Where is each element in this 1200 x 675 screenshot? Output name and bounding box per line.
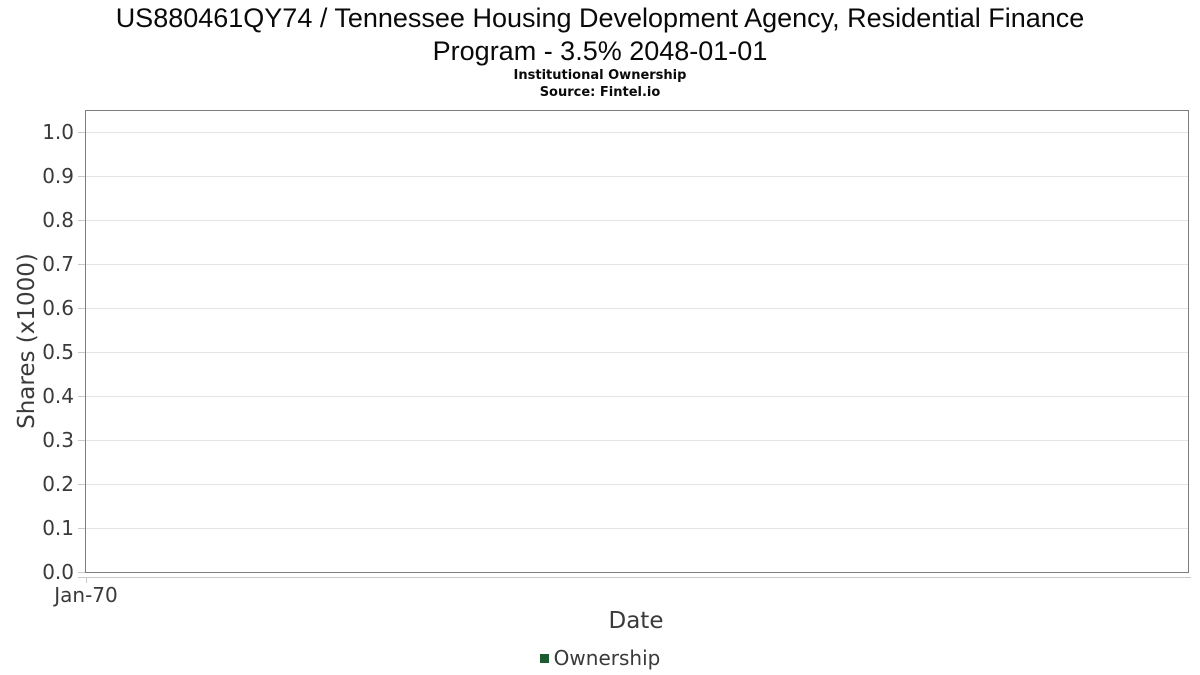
gridline-y-0.5 <box>86 352 1188 353</box>
plot-area <box>85 110 1189 573</box>
chart-source: Source: Fintel.io <box>0 85 1200 100</box>
legend-swatch-ownership <box>540 654 549 663</box>
legend-item-ownership[interactable]: Ownership <box>540 646 661 670</box>
gridline-y-0.2 <box>86 484 1188 485</box>
chart-page: US880461QY74 / Tennessee Housing Develop… <box>0 0 1200 675</box>
chart-title-line2: Program - 3.5% 2048-01-01 <box>0 35 1200 67</box>
y-tick-mark-0.9 <box>78 176 85 177</box>
gridline-y-0.7 <box>86 264 1188 265</box>
legend: Ownership <box>0 645 1200 671</box>
gridline-y-0.3 <box>86 440 1188 441</box>
y-tick-mark-0.1 <box>78 528 85 529</box>
x-tick-label-Jan-70: Jan-70 <box>26 583 146 607</box>
y-tick-mark-0.0 <box>78 572 85 573</box>
chart-subtitle: Institutional Ownership <box>0 68 1200 83</box>
y-tick-mark-0.7 <box>78 264 85 265</box>
y-tick-label-0.1: 0.1 <box>0 515 74 541</box>
y-tick-mark-0.4 <box>78 396 85 397</box>
gridline-y-0.9 <box>86 176 1188 177</box>
gridline-y-0.1 <box>86 528 1188 529</box>
y-tick-mark-0.6 <box>78 308 85 309</box>
legend-label-ownership: Ownership <box>554 646 661 670</box>
y-tick-mark-1.0 <box>78 132 85 133</box>
gridline-y-0.8 <box>86 220 1188 221</box>
y-axis-title: Shares (x1000) <box>13 191 41 491</box>
y-tick-label-0.0: 0.0 <box>0 559 74 585</box>
x-axis-title: Date <box>536 607 736 635</box>
chart-title-line1: US880461QY74 / Tennessee Housing Develop… <box>0 2 1200 34</box>
y-tick-mark-0.2 <box>78 484 85 485</box>
gridline-y-0.6 <box>86 308 1188 309</box>
gridline-y-1.0 <box>86 132 1188 133</box>
y-tick-mark-0.8 <box>78 220 85 221</box>
gridline-y-0.4 <box>86 396 1188 397</box>
y-tick-mark-0.3 <box>78 440 85 441</box>
y-tick-label-1.0: 1.0 <box>0 119 74 145</box>
y-tick-mark-0.5 <box>78 352 85 353</box>
y-tick-label-0.9: 0.9 <box>0 163 74 189</box>
x-axis-line <box>78 577 1191 578</box>
